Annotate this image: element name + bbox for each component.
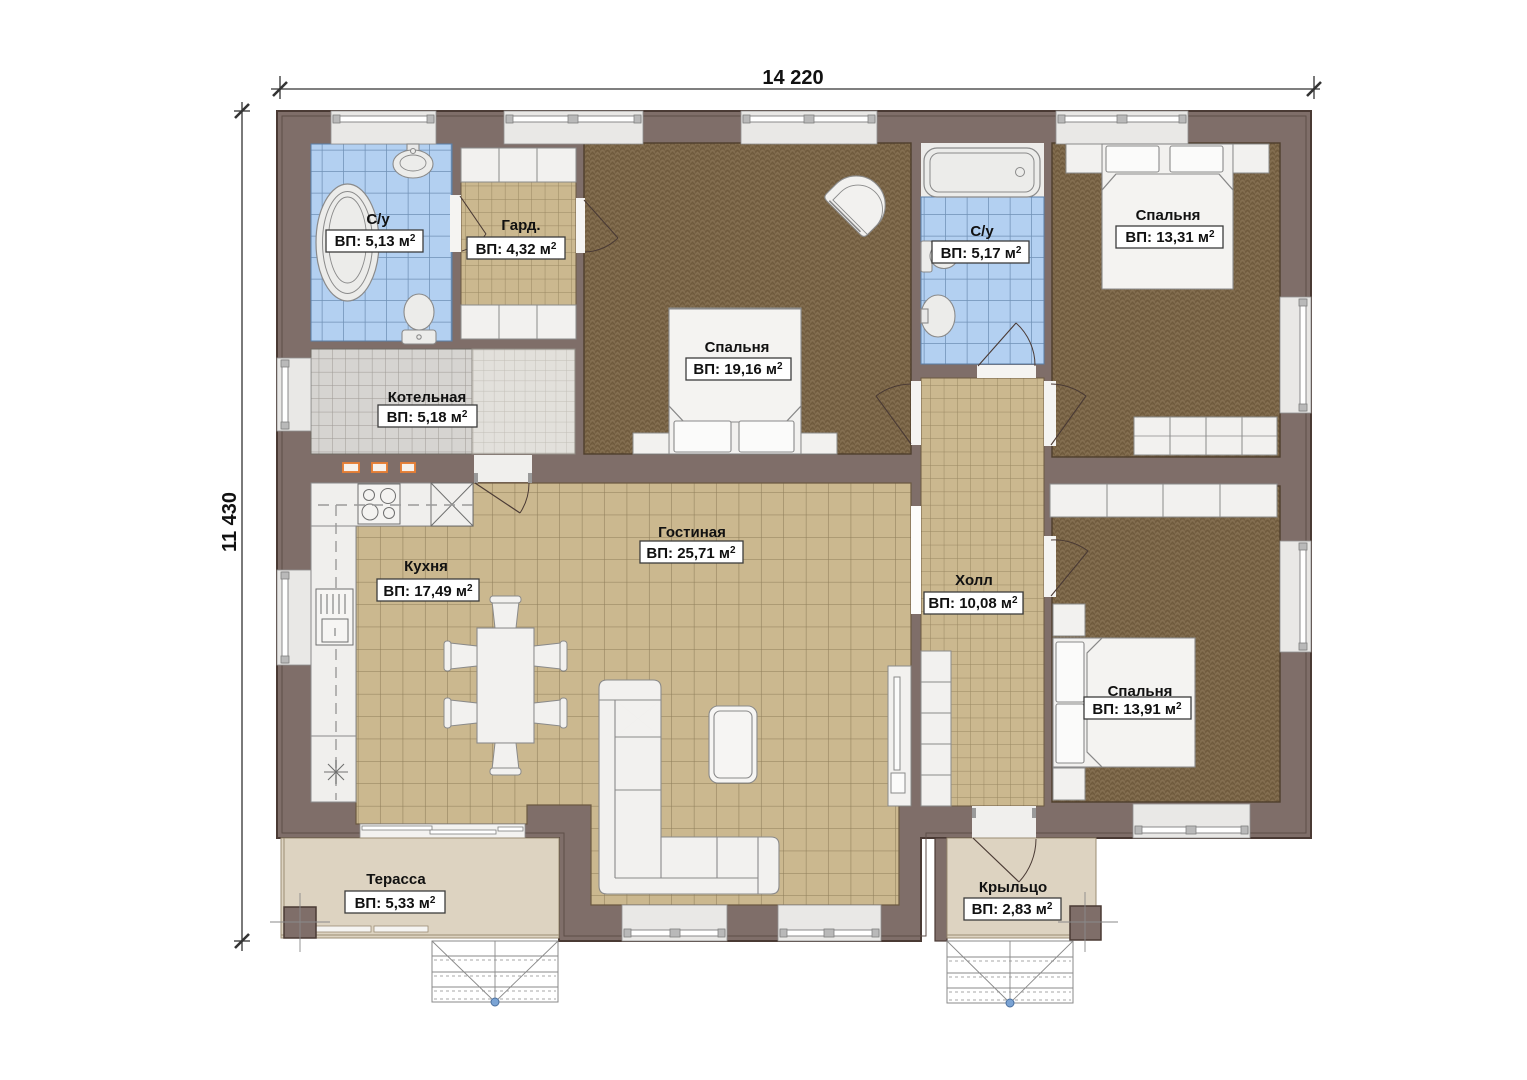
- svg-text:ВП: 2,83 м2: ВП: 2,83 м2: [972, 901, 1053, 918]
- svg-text:14 220: 14 220: [762, 67, 823, 89]
- svg-text:С/у: С/у: [970, 223, 994, 240]
- svg-text:ВП: 17,49 м2: ВП: 17,49 м2: [383, 583, 473, 600]
- svg-text:Терасса: Терасса: [366, 871, 426, 888]
- svg-text:ВП: 5,18 м2: ВП: 5,18 м2: [387, 409, 468, 426]
- svg-text:ВП: 13,31 м2: ВП: 13,31 м2: [1125, 229, 1215, 246]
- svg-text:Спальня: Спальня: [1136, 207, 1201, 224]
- svg-text:ВП: 5,33 м2: ВП: 5,33 м2: [355, 895, 436, 912]
- svg-text:ВП: 19,16 м2: ВП: 19,16 м2: [693, 361, 783, 378]
- svg-text:ВП: 25,71 м2: ВП: 25,71 м2: [646, 545, 736, 562]
- svg-text:Гостиная: Гостиная: [658, 524, 726, 541]
- svg-text:ВП: 10,08 м2: ВП: 10,08 м2: [928, 595, 1018, 612]
- svg-text:С/у: С/у: [366, 211, 390, 228]
- svg-text:Кухня: Кухня: [404, 558, 448, 575]
- svg-text:Холл: Холл: [955, 572, 993, 589]
- svg-text:ВП: 4,32 м2: ВП: 4,32 м2: [476, 241, 557, 258]
- svg-text:Крыльцо: Крыльцо: [979, 879, 1047, 896]
- svg-text:ВП: 5,13 м2: ВП: 5,13 м2: [335, 233, 416, 250]
- svg-text:ВП: 5,17 м2: ВП: 5,17 м2: [941, 245, 1022, 262]
- svg-text:ВП: 13,91 м2: ВП: 13,91 м2: [1092, 701, 1182, 718]
- svg-text:Спальня: Спальня: [705, 339, 770, 356]
- svg-text:11 430: 11 430: [219, 492, 241, 552]
- svg-text:Котельная: Котельная: [388, 389, 467, 406]
- svg-text:Гард.: Гард.: [501, 217, 540, 234]
